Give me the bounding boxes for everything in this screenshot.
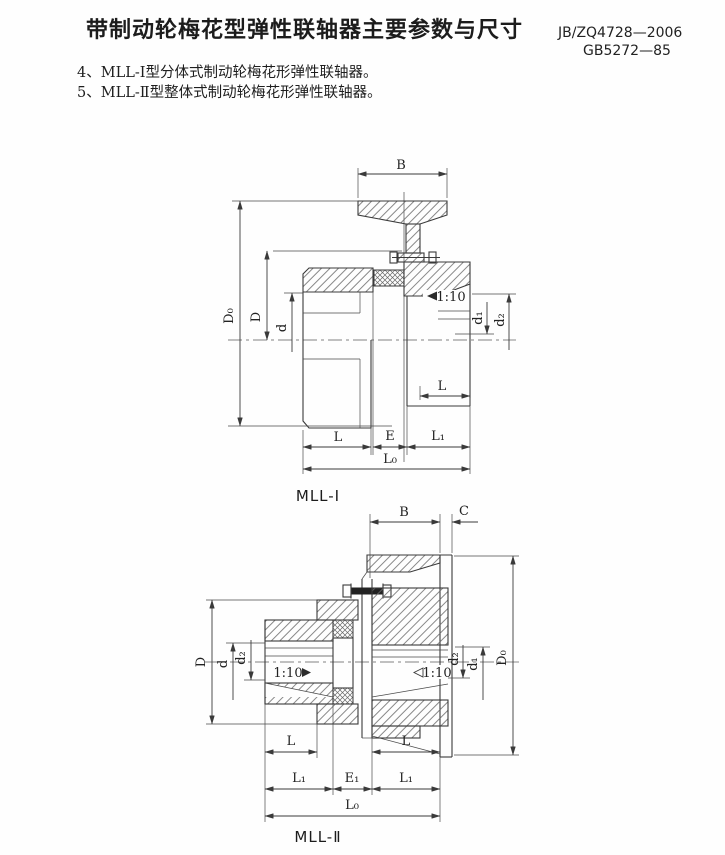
dim-label-LL: L (287, 734, 296, 749)
mll1-dim-d: d (275, 293, 303, 352)
dim-label-L1L: L₁ (292, 771, 306, 786)
mll1-dims-bottom: L E L₁ L₀ (303, 398, 470, 474)
mll2-caption: MLL-Ⅱ (294, 828, 341, 846)
mll1-dim-L-hub: L (420, 379, 470, 400)
dim-label-d2-1: d₂ (493, 313, 508, 327)
dim-label-d1-2: d₁ (466, 657, 481, 671)
mll2-dim-d2-left: d₂ (234, 640, 265, 680)
dim-label-d2fig: d (216, 660, 231, 668)
mll1-left-half (303, 268, 373, 428)
mll2-dim-D0: D₀ (454, 556, 519, 755)
dim-label-d1-1: d₁ (471, 311, 486, 325)
dim-label-L1sub: L₁ (431, 429, 445, 444)
dim-label-C: C (459, 504, 469, 519)
mll2-drawing: 1:10 1:10 B C D d (194, 504, 520, 846)
dim-label-E1: E₁ (345, 771, 360, 786)
mll2-taper-callout-right: 1:10 (410, 665, 452, 681)
mll1-caption: MLL-Ⅰ (296, 487, 340, 505)
dim-label-L0-2: L₀ (345, 798, 359, 813)
dim-label-D1: D (249, 312, 264, 322)
dim-label-taper2R: 1:10 (422, 666, 451, 681)
mll1-elastomer-spider (374, 270, 404, 286)
mll2-right-half (372, 588, 448, 738)
dim-label-D0-2: D₀ (495, 650, 510, 666)
mll2-dim-C: C (452, 504, 478, 553)
mll1-drawing: 1:10 B D₀ D d (222, 158, 516, 505)
dim-label-Lhub: L (438, 379, 447, 394)
dim-label-LR: L (402, 734, 411, 749)
dim-label-E: E (385, 429, 395, 444)
dim-label-d2L: d₂ (234, 651, 249, 665)
mll1-dim-D: D (249, 251, 402, 340)
dim-label-L0-1: L₀ (383, 452, 397, 467)
mll1-dim-D0: D₀ (222, 201, 392, 426)
dim-label-D2: D (194, 657, 209, 667)
dim-label-taper1: 1:10 (436, 290, 465, 305)
technical-drawing: 1:10 B D₀ D d (0, 0, 725, 855)
mll1-brake-wheel (358, 201, 447, 262)
dim-label-d1: d (275, 324, 290, 332)
mll1-taper-callout: 1:10 (423, 290, 466, 305)
dim-label-L1R: L₁ (399, 771, 413, 786)
mll2-taper-callout-left: 1:10 (270, 665, 314, 681)
mll1-dim-B: B (358, 158, 447, 198)
dim-label-d2R: d₂ (447, 652, 462, 666)
dim-label-taper2L: 1:10 (273, 666, 302, 681)
dim-label-B2: B (399, 505, 409, 520)
dim-label-D0-1: D₀ (222, 308, 237, 324)
dim-label-L1fig1: L (334, 430, 343, 445)
dim-label-B1: B (396, 158, 406, 173)
